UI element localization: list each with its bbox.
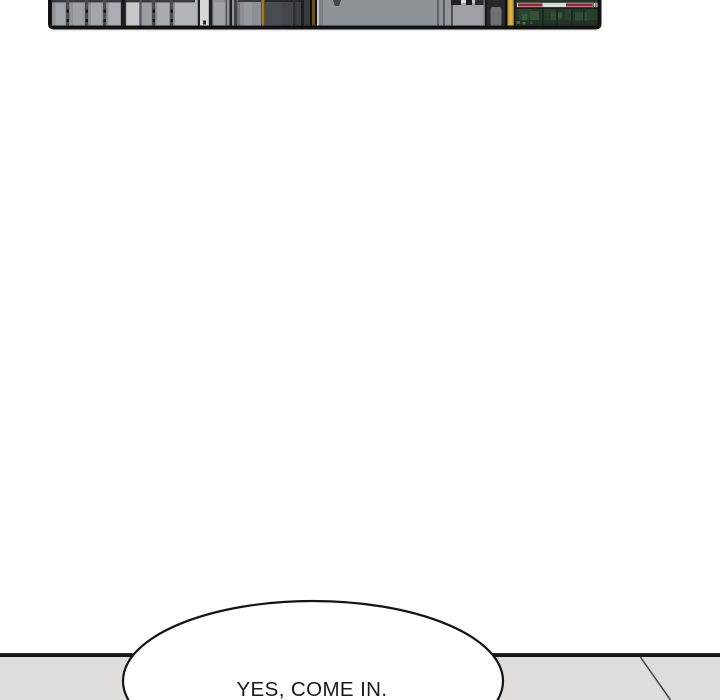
svg-text:YES, COME IN.: YES, COME IN. <box>236 678 387 700</box>
